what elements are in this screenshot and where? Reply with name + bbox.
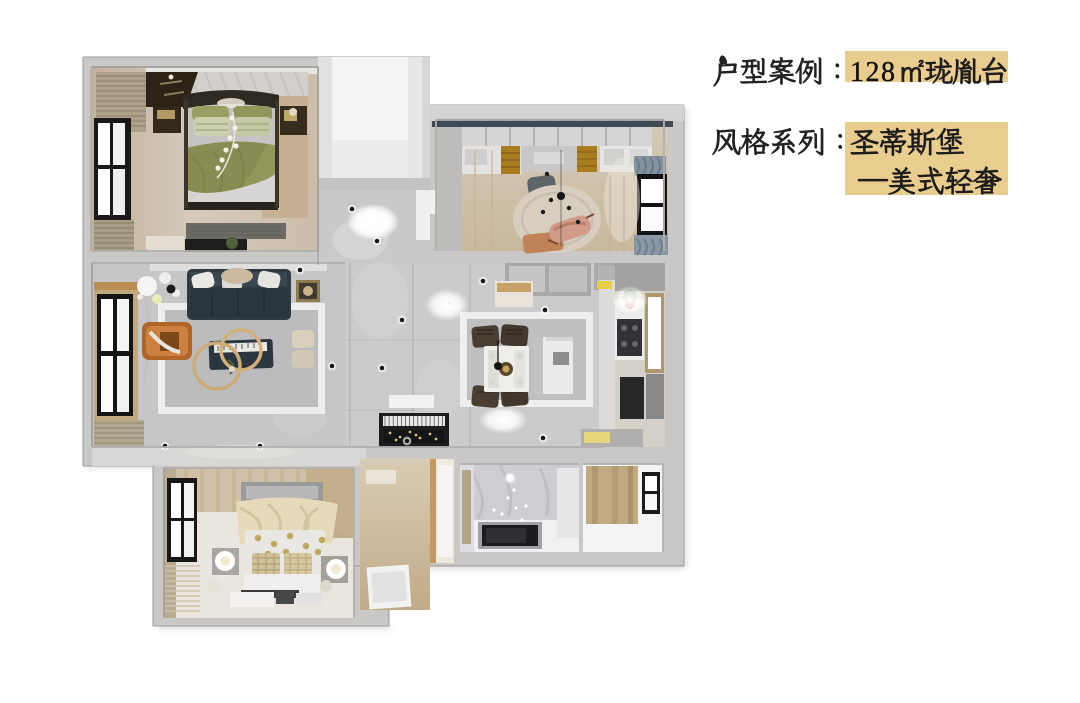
svg-text:128: 128 <box>850 57 897 88</box>
